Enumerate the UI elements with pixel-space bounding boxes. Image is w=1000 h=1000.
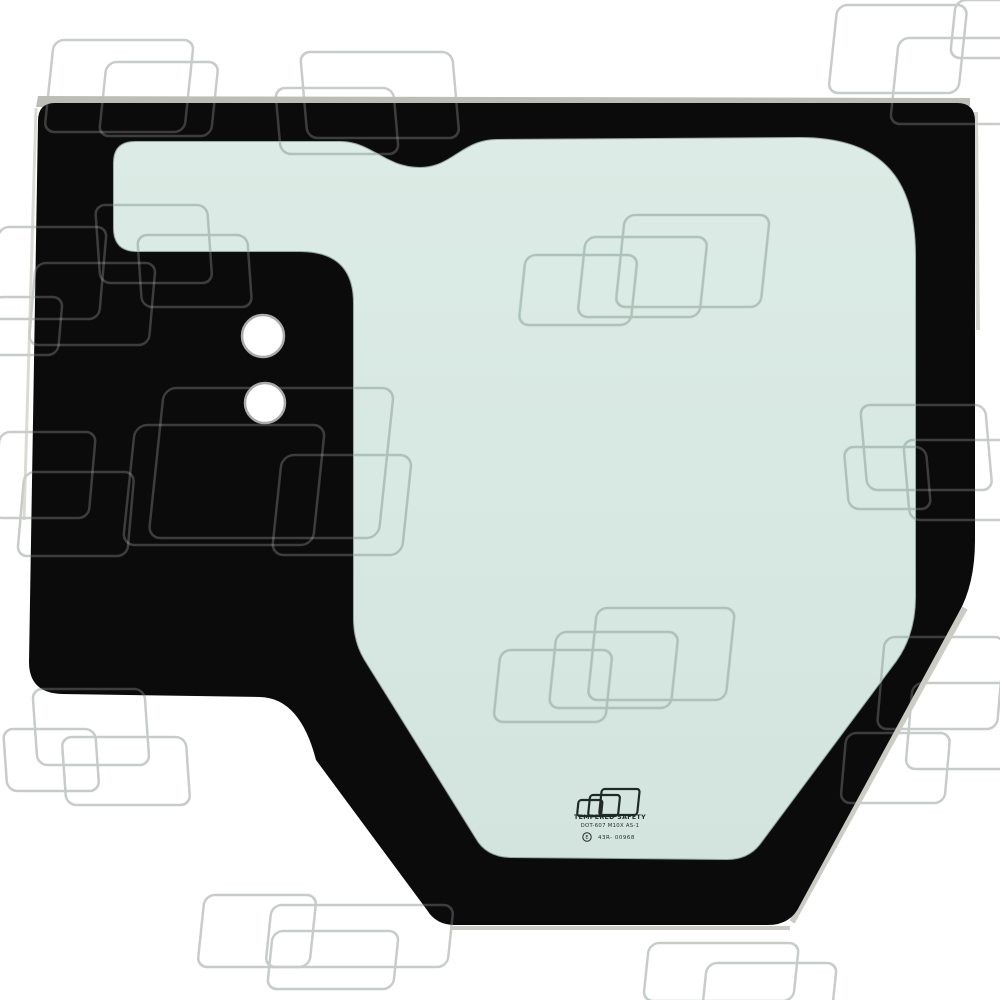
stamp-text-line1: TEMPERED SAFETY: [574, 814, 646, 821]
stamp-text-line3: 43R- 00968: [598, 835, 635, 841]
stamp-text-line2: DOT-607 M10X AS-1: [581, 823, 640, 829]
product-photo: TEMPERED SAFETY DOT-607 M10X AS-1 E 43R-…: [0, 0, 1000, 1000]
glass-panel-illustration: TEMPERED SAFETY DOT-607 M10X AS-1 E 43R-…: [0, 0, 1000, 1000]
right-edge-silver-strip: [976, 112, 978, 330]
mounting-hole-bottom: [245, 383, 285, 423]
stamp-e-mark-letter: E: [585, 835, 588, 841]
mounting-hole-top: [242, 315, 284, 357]
